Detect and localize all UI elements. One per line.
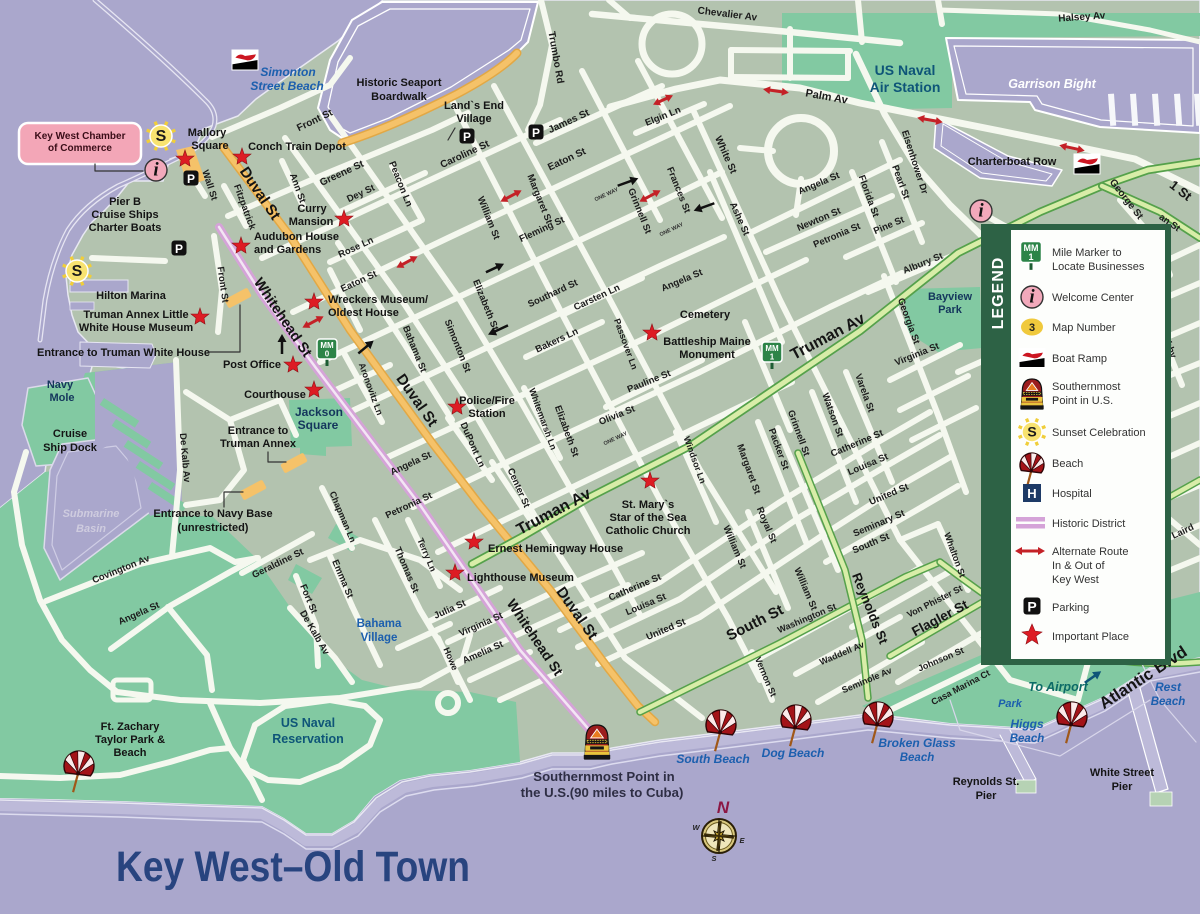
svg-text:(unrestricted): (unrestricted) (178, 522, 249, 534)
svg-text:S: S (711, 854, 716, 863)
svg-text:Cemetery: Cemetery (680, 309, 731, 321)
svg-text:i: i (978, 201, 984, 222)
svg-text:In & Out of: In & Out of (1052, 560, 1106, 572)
svg-text:Pier: Pier (976, 790, 998, 802)
svg-text:P: P (1027, 598, 1036, 614)
svg-text:White Street: White Street (1090, 767, 1155, 779)
svg-text:Mallory: Mallory (188, 127, 227, 139)
svg-text:Map Number: Map Number (1052, 322, 1116, 334)
svg-text:W: W (692, 823, 700, 832)
svg-text:Curry: Curry (297, 203, 327, 215)
svg-text:Truman Annex Little: Truman Annex Little (83, 309, 188, 321)
svg-text:Reservation: Reservation (272, 732, 344, 746)
svg-text:Alternate Route: Alternate Route (1052, 546, 1128, 558)
svg-text:Key West: Key West (1052, 574, 1099, 586)
svg-text:Pier B: Pier B (109, 196, 141, 208)
svg-text:Southernmost: Southernmost (1052, 381, 1120, 393)
svg-text:Catholic Church: Catholic Church (606, 525, 691, 537)
svg-text:Air Station: Air Station (870, 79, 941, 95)
svg-text:P: P (187, 172, 195, 186)
svg-text:To Airport: To Airport (1028, 680, 1088, 694)
svg-text:Navy: Navy (47, 379, 74, 391)
svg-text:Welcome Center: Welcome Center (1052, 292, 1134, 304)
svg-text:Beach: Beach (1052, 458, 1083, 470)
svg-text:Oldest House: Oldest House (328, 307, 399, 319)
svg-text:Beach: Beach (1010, 733, 1045, 745)
svg-text:St. Mary`s: St. Mary`s (622, 499, 675, 511)
svg-text:the U.S.(90 miles to Cuba): the U.S.(90 miles to Cuba) (521, 785, 684, 800)
svg-text:H: H (1027, 486, 1036, 501)
svg-text:Wreckers Museum/: Wreckers Museum/ (328, 294, 428, 306)
svg-text:Parking: Parking (1052, 602, 1089, 614)
svg-text:Park: Park (938, 304, 963, 316)
svg-text:Cruise: Cruise (53, 428, 87, 440)
svg-text:Garrison Bight: Garrison Bight (1008, 77, 1096, 91)
svg-text:0: 0 (325, 350, 330, 359)
svg-text:of Commerce: of Commerce (48, 143, 112, 154)
svg-text:Submarine: Submarine (63, 508, 120, 520)
svg-text:N: N (717, 798, 730, 817)
svg-text:Ship Dock: Ship Dock (43, 442, 98, 454)
svg-text:Jackson: Jackson (295, 405, 343, 419)
svg-text:Simonton: Simonton (260, 65, 315, 79)
svg-text:1: 1 (770, 353, 775, 362)
svg-text:Courthouse: Courthouse (244, 389, 306, 401)
svg-text:Rest: Rest (1155, 680, 1182, 694)
svg-text:Charter Boats: Charter Boats (89, 222, 162, 234)
svg-text:Southernmost Point in: Southernmost Point in (533, 769, 674, 784)
svg-text:Truman Annex: Truman Annex (220, 438, 297, 450)
svg-text:i: i (153, 160, 159, 181)
svg-text:Beach: Beach (113, 747, 146, 759)
svg-text:Entrance to Navy Base: Entrance to Navy Base (153, 508, 272, 520)
svg-text:Dog Beach: Dog Beach (762, 746, 825, 760)
svg-text:S: S (1027, 424, 1036, 440)
svg-text:Bayview: Bayview (928, 291, 972, 303)
svg-text:Ernest Hemingway House: Ernest Hemingway House (488, 543, 623, 555)
svg-text:Square: Square (298, 418, 339, 432)
svg-text:Historic District: Historic District (1052, 518, 1125, 530)
svg-text:Cruise Ships: Cruise Ships (91, 209, 158, 221)
svg-text:Mole: Mole (49, 392, 74, 404)
svg-text:US Naval: US Naval (281, 716, 335, 730)
svg-text:Basin: Basin (76, 523, 106, 535)
svg-text:South Beach: South Beach (676, 752, 749, 766)
svg-text:S: S (72, 263, 83, 280)
svg-text:Post Office: Post Office (223, 359, 281, 371)
svg-text:Bahama: Bahama (357, 618, 402, 630)
svg-text:Pier: Pier (1112, 781, 1134, 793)
svg-text:Village: Village (456, 113, 491, 125)
svg-text:Key West Chamber: Key West Chamber (35, 131, 126, 142)
svg-text:Village: Village (361, 632, 398, 644)
svg-text:US Naval: US Naval (875, 62, 936, 78)
svg-text:Higgs: Higgs (1010, 717, 1044, 731)
svg-text:Square: Square (191, 140, 228, 152)
svg-text:Monument: Monument (679, 349, 735, 361)
svg-text:i: i (1029, 287, 1035, 308)
svg-text:Key West–Old Town: Key West–Old Town (116, 843, 470, 891)
svg-text:White House Museum: White House Museum (79, 322, 194, 334)
svg-text:Sunset Celebration: Sunset Celebration (1052, 427, 1146, 439)
svg-text:Land`s End: Land`s End (444, 100, 504, 112)
svg-text:LEGEND: LEGEND (990, 257, 1007, 330)
svg-text:Entrance to Truman White House: Entrance to Truman White House (37, 347, 210, 359)
svg-text:Police/Fire: Police/Fire (459, 395, 515, 407)
svg-text:Battleship Maine: Battleship Maine (663, 336, 750, 348)
svg-text:1: 1 (1028, 252, 1033, 262)
svg-text:S: S (156, 128, 167, 145)
svg-text:Important Place: Important Place (1052, 631, 1129, 643)
svg-text:Lighthouse Museum: Lighthouse Museum (467, 572, 574, 584)
svg-text:Beach: Beach (1151, 696, 1186, 708)
svg-text:Broken Glass: Broken Glass (878, 736, 956, 750)
svg-text:Mansion: Mansion (289, 216, 334, 228)
svg-text:P: P (175, 242, 183, 256)
svg-text:Ft. Zachary: Ft. Zachary (101, 721, 161, 733)
svg-text:Star of the Sea: Star of the Sea (609, 512, 687, 524)
svg-text:Beach: Beach (900, 752, 935, 764)
svg-text:Entrance to: Entrance to (228, 425, 289, 437)
svg-text:Taylor Park &: Taylor Park & (95, 734, 165, 746)
svg-text:Park: Park (998, 698, 1023, 710)
svg-text:P: P (463, 130, 471, 144)
svg-text:P: P (532, 126, 540, 140)
svg-text:Boat Ramp: Boat Ramp (1052, 353, 1107, 365)
svg-text:Conch Train Depot: Conch Train Depot (248, 141, 346, 153)
svg-text:Hospital: Hospital (1052, 488, 1092, 500)
svg-text:Station: Station (468, 408, 506, 420)
svg-text:and Gardens: and Gardens (254, 244, 321, 256)
svg-text:Reynolds St.: Reynolds St. (953, 776, 1020, 788)
svg-text:Historic Seaport: Historic Seaport (357, 77, 442, 89)
svg-text:Hilton Marina: Hilton Marina (96, 290, 167, 302)
svg-text:Street Beach: Street Beach (250, 79, 323, 93)
svg-text:Audubon House: Audubon House (254, 231, 339, 243)
svg-text:Point in U.S.: Point in U.S. (1052, 395, 1113, 407)
svg-text:3: 3 (1029, 322, 1035, 334)
svg-text:Locate Businesses: Locate Businesses (1052, 261, 1145, 273)
svg-text:Mile Marker to: Mile Marker to (1052, 247, 1122, 259)
svg-text:Boardwalk: Boardwalk (371, 91, 428, 103)
svg-text:Charterboat Row: Charterboat Row (968, 156, 1057, 168)
